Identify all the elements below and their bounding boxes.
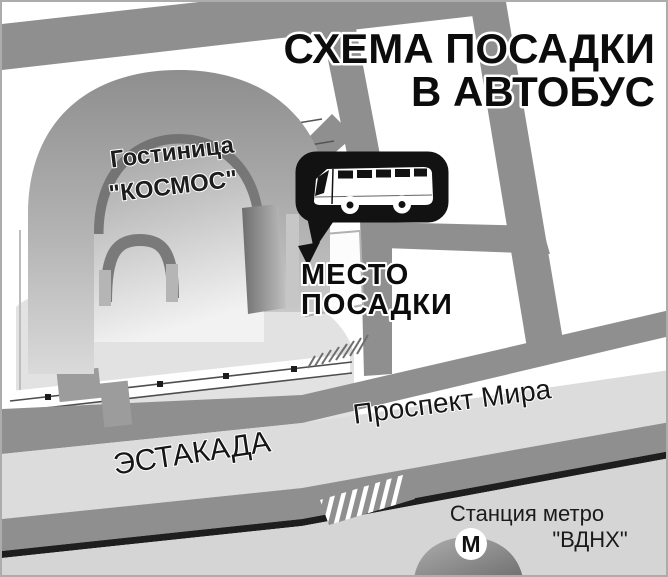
boarding-label-line1: МЕСТО: [301, 259, 409, 291]
metro-symbol: М: [461, 531, 480, 557]
hotel-entrance-column-right: [166, 264, 178, 302]
map-title-line1: СХЕМА ПОСАДКИ: [283, 25, 655, 72]
hotel-entrance-column-left: [99, 270, 111, 306]
map-canvas: М ЭСТАКАДА Проспект Мира Станция метро "…: [2, 2, 668, 577]
map-title-line2: В АВТОБУС: [411, 68, 655, 115]
bus-boarding-map: М ЭСТАКАДА Проспект Мира Станция метро "…: [0, 0, 668, 577]
hotel-right-cylinder: [286, 214, 299, 306]
boarding-label-line2: ПОСАДКИ: [301, 289, 453, 321]
metro-station-label-line2: "ВДНХ": [552, 527, 627, 552]
metro-station-label-line1: Станция метро: [450, 501, 604, 526]
